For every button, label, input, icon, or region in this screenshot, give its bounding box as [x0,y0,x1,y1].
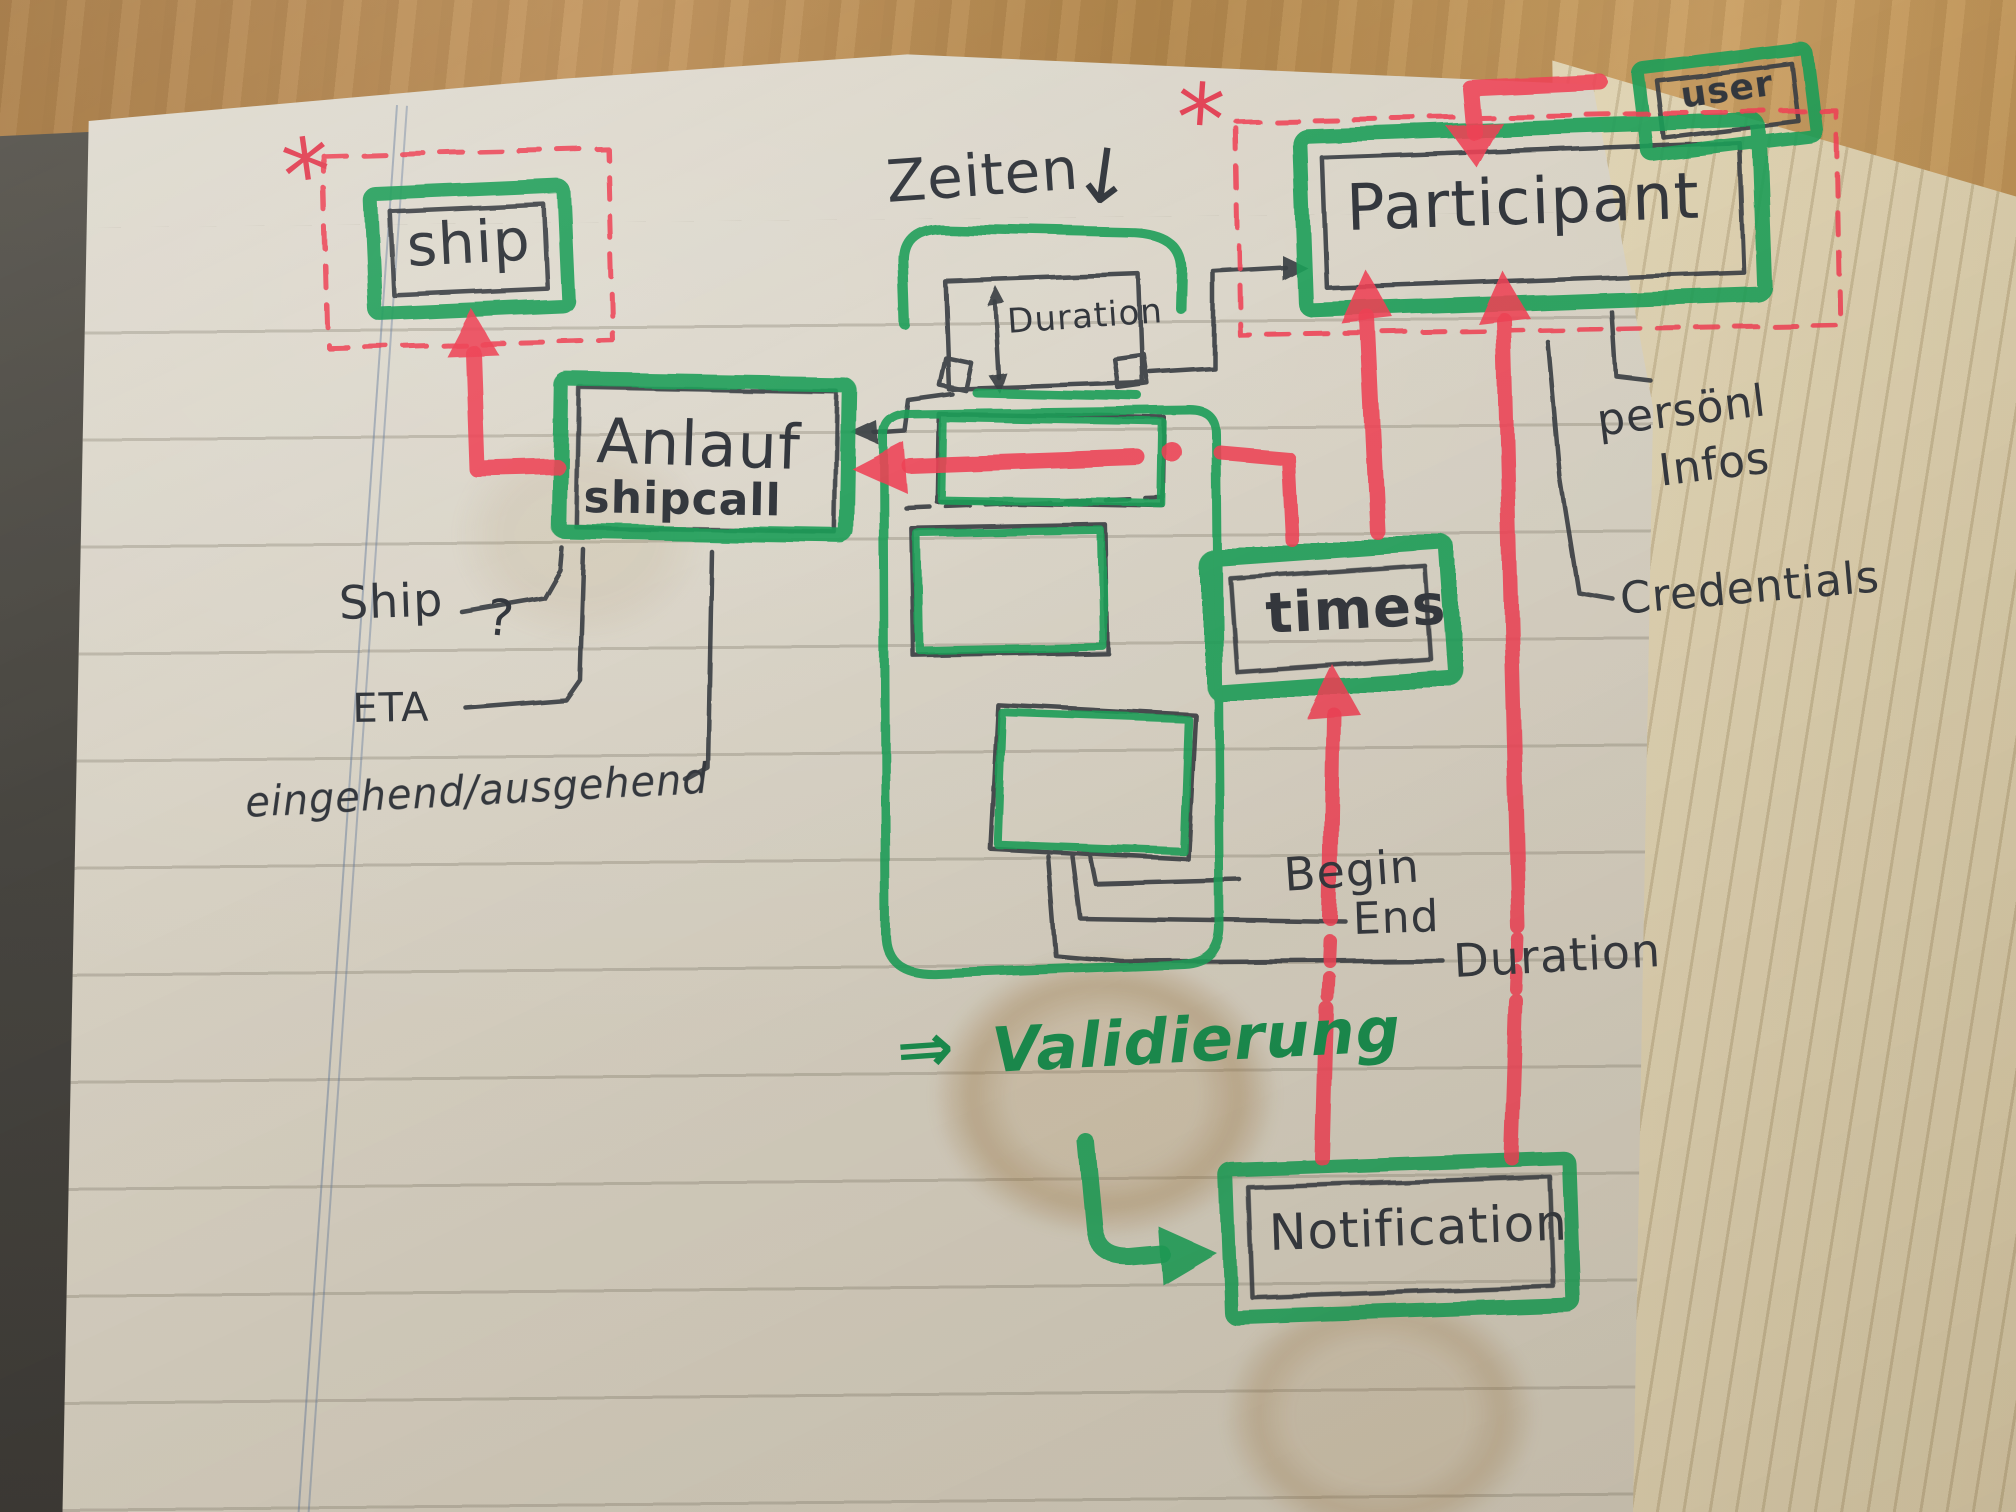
hook-arrow-to-notification [1086,1142,1162,1257]
red-arrow-times-elbow [1220,452,1292,540]
red-arrowhead-up-participant-1 [1342,270,1394,324]
end-attr-label: End [1352,891,1440,945]
red-arrow-times-to-anlauf [910,458,1138,466]
sketch-box-c-marker [998,713,1188,851]
hook-arrowhead [1158,1226,1216,1284]
red-arrow-notification-to-times-dashed [1327,930,1330,996]
validation-double-arrow: ⇒ [894,1008,957,1091]
zeiten-down-arrow: ↓ [1066,128,1142,225]
ship-box-label: ship [405,206,532,280]
sketch-box-b-pen [911,524,1107,655]
duration-vertical-arrow [995,302,999,378]
line-participant-credentials [1548,342,1612,598]
red-arrowhead-down-participant [1446,122,1502,168]
red-arrow-notification-to-participant-upper [1504,320,1519,928]
red-dot [1162,442,1182,462]
duration-underline [976,392,1138,396]
red-arrow-anlauf-to-ship [472,352,556,468]
anlauf-box-sublabel: shipcall [583,472,782,526]
asterisk-participant: * [1172,62,1229,177]
red-arrow-times-to-participant [1368,318,1378,532]
line-anlauf-inout [686,552,712,780]
line-eta-attr [466,550,584,708]
red-arrow-notification-to-participant-lower [1512,1002,1517,1158]
times-box-label: times [1264,573,1448,647]
participant-box-label: Participant [1345,160,1701,246]
sketch-box-b-marker [917,530,1103,649]
duration-attr-label: Duration [1452,923,1662,988]
zeiten-label: Zeiten [884,135,1081,216]
notebook-photo: ship Participant user Anlauf shipcall ti… [0,0,2016,1512]
line-duration-to-participant [1150,268,1286,372]
sketch-box-c-pen [990,705,1195,859]
notification-box-label: Notification [1268,1194,1569,1262]
eta-attr-label: ETA [352,685,430,732]
ship-attr-label: Ship [338,572,444,630]
duration-connector-square-left [939,358,971,391]
duration-arrowhead-up [987,286,1005,306]
line-participant-personal [1612,312,1650,380]
